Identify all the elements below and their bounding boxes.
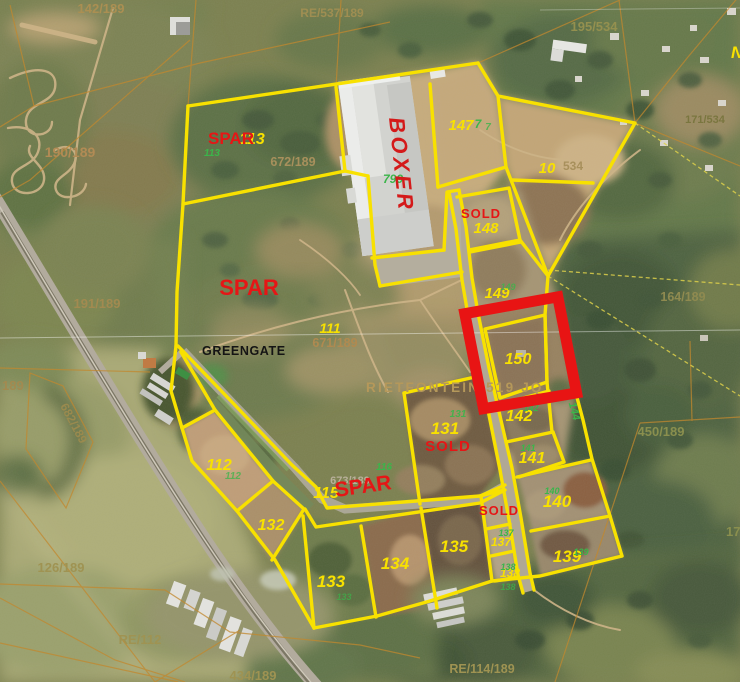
svg-text:10: 10 <box>539 160 556 177</box>
svg-text:139: 139 <box>573 547 588 557</box>
svg-text:189: 189 <box>2 378 24 393</box>
svg-text:149: 149 <box>500 282 515 292</box>
svg-text:GREENGATE: GREENGATE <box>202 344 286 358</box>
svg-text:671/189: 671/189 <box>312 336 357 350</box>
svg-text:137: 137 <box>498 528 514 538</box>
svg-text:SOLD: SOLD <box>479 503 519 518</box>
svg-text:190/189: 190/189 <box>45 144 96 160</box>
svg-text:NO: NO <box>731 43 740 62</box>
svg-text:RE/114/189: RE/114/189 <box>449 662 514 676</box>
svg-text:RE/112: RE/112 <box>119 632 162 647</box>
svg-text:SPAR: SPAR <box>208 129 254 148</box>
svg-text:131: 131 <box>450 409 467 420</box>
svg-text:112: 112 <box>225 471 241 482</box>
svg-text:RE/537/189: RE/537/189 <box>300 6 364 20</box>
svg-text:131: 131 <box>431 419 459 438</box>
svg-text:138: 138 <box>500 582 515 592</box>
svg-text:SOLD: SOLD <box>425 438 471 455</box>
svg-text:172/: 172/ <box>726 524 740 539</box>
svg-text:133: 133 <box>317 572 346 591</box>
svg-text:148: 148 <box>473 220 499 237</box>
svg-text:150: 150 <box>505 351 532 368</box>
svg-text:7: 7 <box>485 122 491 133</box>
svg-text:RIETFONTEIN 519 JQ: RIETFONTEIN 519 JQ <box>366 380 544 395</box>
svg-text:126/189: 126/189 <box>38 560 85 575</box>
svg-text:135: 135 <box>440 537 469 556</box>
svg-text:534: 534 <box>563 159 583 173</box>
svg-text:450/189: 450/189 <box>638 424 685 439</box>
svg-text:SPAR: SPAR <box>219 275 279 300</box>
svg-text:191/189: 191/189 <box>74 296 121 311</box>
svg-text:141: 141 <box>520 443 535 453</box>
svg-text:142/189: 142/189 <box>78 1 125 16</box>
svg-text:140: 140 <box>544 486 559 496</box>
svg-text:138: 138 <box>500 562 515 572</box>
svg-text:672/189: 672/189 <box>270 155 315 169</box>
svg-text:434/189: 434/189 <box>230 668 277 682</box>
svg-text:113: 113 <box>204 148 220 159</box>
svg-text:171/534: 171/534 <box>685 114 726 126</box>
svg-text:133: 133 <box>336 592 351 602</box>
svg-text:SOLD: SOLD <box>461 206 501 221</box>
svg-text:164/189: 164/189 <box>660 290 705 304</box>
svg-text:134: 134 <box>381 554 410 573</box>
svg-text:111: 111 <box>319 320 340 336</box>
svg-text:132: 132 <box>258 517 285 534</box>
svg-text:195/534: 195/534 <box>571 19 619 34</box>
svg-text:147: 147 <box>448 117 474 134</box>
